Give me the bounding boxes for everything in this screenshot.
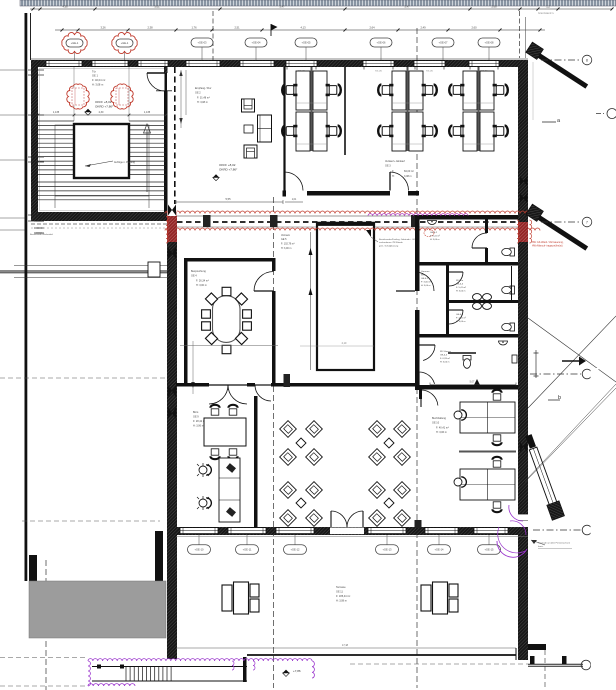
svg-text:GE 1: GE 1 bbox=[92, 74, 98, 78]
svg-text:Büro: Büro bbox=[193, 411, 199, 414]
svg-text:vorhandenes 7R-Wände: vorhandenes 7R-Wände bbox=[379, 241, 403, 244]
svg-text:Besprechung: Besprechung bbox=[191, 270, 206, 273]
svg-text:Verkauf + Einkauf: Verkauf + Einkauf bbox=[385, 160, 405, 163]
svg-text:GE-6-3: GE-6-3 bbox=[456, 284, 464, 286]
svg-text:H: 3,00 m: H: 3,00 m bbox=[456, 321, 466, 323]
svg-text:+GE-07: +GE-07 bbox=[438, 41, 448, 45]
svg-text:HW-Abbruch- tragw.prüfen(st): HW-Abbruch- tragw.prüfen(st) bbox=[532, 245, 563, 248]
svg-text:F: 3,00 m²: F: 3,00 m² bbox=[421, 281, 431, 284]
svg-text:F: 31,48 m²: F: 31,48 m² bbox=[197, 97, 210, 100]
svg-text:Aufzüge n. Planung: Aufzüge n. Planung bbox=[114, 161, 136, 164]
svg-text:3,26: 3,26 bbox=[100, 26, 106, 30]
svg-text:+GE-1: +GE-1 bbox=[121, 41, 129, 45]
svg-text:H: 3,06 m: H: 3,06 m bbox=[436, 431, 447, 434]
svg-text:2,60: 2,60 bbox=[471, 26, 477, 30]
svg-text:H:: H: bbox=[392, 175, 395, 178]
svg-text:F: 40,41 m²: F: 40,41 m² bbox=[436, 427, 449, 430]
svg-text:Vorraum: Vorraum bbox=[281, 234, 290, 237]
svg-text:Bestehende Werbetafel: Bestehende Werbetafel bbox=[30, 233, 53, 236]
svg-text:F: 185,44 m²: F: 185,44 m² bbox=[336, 595, 350, 598]
svg-text:1,01: 1,01 bbox=[292, 199, 297, 201]
svg-text:+GE-11: +GE-11 bbox=[243, 548, 252, 552]
svg-text:Bestehendes/Freilieg. Gebäude: Bestehendes/Freilieg. Gebäude i. UG bbox=[379, 238, 416, 241]
svg-text:OKFF +8,02: OKFF +8,02 bbox=[219, 163, 236, 167]
svg-text:GE 5: GE 5 bbox=[281, 238, 287, 241]
svg-text:1,135: 1,135 bbox=[144, 111, 151, 114]
svg-text:GE-6-2: GE-6-2 bbox=[430, 232, 438, 234]
svg-text:2,49: 2,49 bbox=[420, 26, 426, 30]
svg-text:84,00 m²: 84,00 m² bbox=[404, 170, 414, 173]
svg-text:2,30: 2,30 bbox=[99, 111, 104, 114]
svg-text:GE 9: GE 9 bbox=[193, 416, 199, 419]
svg-text:5,01: 5,01 bbox=[154, 5, 160, 9]
svg-text:H: 3,00 m: H: 3,00 m bbox=[421, 285, 431, 287]
svg-text:OKRD +7,86*: OKRD +7,86* bbox=[219, 168, 238, 172]
svg-text:5,47: 5,47 bbox=[279, 5, 285, 9]
svg-text:H: 3,00 m: H: 3,00 m bbox=[440, 362, 450, 364]
svg-text:+GE-08: +GE-08 bbox=[484, 41, 494, 45]
svg-text:+GE-14: +GE-14 bbox=[434, 548, 444, 552]
svg-text:1,135: 1,135 bbox=[53, 111, 60, 114]
svg-text:+7,86: +7,86 bbox=[293, 669, 301, 673]
svg-text:H: 3,06 m: H: 3,06 m bbox=[193, 425, 204, 428]
svg-text:5,07: 5,07 bbox=[470, 381, 475, 384]
svg-text:+GE-1: +GE-1 bbox=[71, 41, 79, 45]
svg-text:Tür: Tür bbox=[92, 70, 96, 74]
svg-text:17,18: 17,18 bbox=[342, 644, 349, 647]
svg-text:2,10: 2,10 bbox=[342, 342, 347, 345]
svg-text:H: 3,00 m: H: 3,00 m bbox=[430, 239, 440, 241]
svg-text:b: b bbox=[558, 395, 561, 401]
svg-text:F: 102,79 m²: F: 102,79 m² bbox=[281, 243, 295, 246]
svg-text:1,2: 1,2 bbox=[546, 5, 550, 9]
svg-text:Vorraum: Vorraum bbox=[421, 270, 429, 273]
svg-text:+GE-13: +GE-13 bbox=[382, 548, 392, 552]
svg-text:8: 8 bbox=[586, 59, 588, 63]
svg-text:F: 4,26 m²: F: 4,26 m² bbox=[456, 317, 466, 320]
svg-text:GE 10: GE 10 bbox=[432, 422, 440, 425]
svg-text:2,64: 2,64 bbox=[369, 26, 375, 30]
svg-text:F: 6,93 m²: F: 6,93 m² bbox=[440, 357, 450, 360]
svg-text:+GE-15: +GE-15 bbox=[484, 548, 494, 552]
svg-text:WC/Da: WC/Da bbox=[456, 280, 464, 282]
svg-text:horiz.: horiz. bbox=[538, 545, 544, 548]
svg-text:+GE-03: +GE-03 bbox=[197, 41, 207, 45]
svg-text:OKFF +8,02: OKFF +8,02 bbox=[95, 100, 112, 104]
svg-text:+GE-04: +GE-04 bbox=[251, 41, 261, 45]
svg-text:5,55: 5,55 bbox=[225, 197, 231, 201]
svg-text:+GE-06: +GE-06 bbox=[376, 41, 386, 45]
svg-text:4,13: 4,13 bbox=[300, 26, 306, 30]
svg-text:F: 8,41 m²: F: 8,41 m² bbox=[430, 235, 440, 238]
svg-text:F: 5,41 m²: F: 5,41 m² bbox=[456, 286, 466, 289]
svg-text:H: 3,00 m: H: 3,00 m bbox=[196, 284, 207, 287]
svg-text:7: 7 bbox=[586, 221, 588, 225]
svg-text:H: 3,00 m: H: 3,00 m bbox=[456, 291, 466, 293]
svg-text:GE 2: GE 2 bbox=[195, 92, 201, 95]
svg-text:WC Herren: WC Herren bbox=[440, 350, 452, 353]
svg-text:901+80: 901+80 bbox=[426, 71, 434, 73]
svg-text:Sonnade an allen Fensterachsen: Sonnade an allen Fensterachsen bbox=[538, 542, 571, 545]
svg-text:GE 11: GE 11 bbox=[336, 591, 344, 594]
svg-text:Buchhaltung: Buchhaltung bbox=[432, 417, 447, 420]
svg-text:Empfang / Flur: Empfang / Flur bbox=[195, 87, 212, 90]
svg-text:GE 4: GE 4 bbox=[191, 275, 197, 278]
svg-text:H: 3,00 m: H: 3,00 m bbox=[281, 247, 291, 250]
svg-text:+GE-05: +GE-05 bbox=[301, 41, 311, 45]
svg-text:OKRD +7,86*: OKRD +7,86* bbox=[95, 105, 114, 109]
svg-text:Terrasse: Terrasse bbox=[336, 586, 346, 589]
svg-text:+GE-12: +GE-12 bbox=[290, 548, 300, 552]
svg-text:GE 3: GE 3 bbox=[385, 165, 391, 168]
svg-text:2,38: 2,38 bbox=[147, 26, 153, 30]
svg-text:H: 3,08 m: H: 3,08 m bbox=[336, 600, 347, 603]
svg-text:+GE-10: +GE-10 bbox=[194, 548, 204, 552]
svg-text:Grenzwand n.: Grenzwand n. bbox=[538, 11, 554, 15]
svg-text:GE-6-1: GE-6-1 bbox=[421, 278, 429, 280]
svg-text:4,38: 4,38 bbox=[62, 5, 68, 9]
svg-text:1,76: 1,76 bbox=[191, 26, 197, 30]
svg-text:901+80: 901+80 bbox=[375, 71, 383, 73]
svg-text:2,68: 2,68 bbox=[491, 5, 497, 9]
svg-text:H: 3,08 m: H: 3,08 m bbox=[197, 101, 208, 104]
svg-text:F: 26,34 m²: F: 26,34 m² bbox=[196, 280, 209, 283]
svg-text:NW: GK-Wand / Vormauerung,: NW: GK-Wand / Vormauerung, bbox=[532, 241, 564, 244]
svg-text:5,47: 5,47 bbox=[404, 5, 410, 9]
svg-text:gem. Schallplanung: gem. Schallplanung bbox=[379, 245, 399, 247]
svg-text:3,08 m: 3,08 m bbox=[404, 175, 412, 178]
svg-text:F: 40,04 m²: F: 40,04 m² bbox=[92, 78, 105, 82]
svg-text:GE-6-4: GE-6-4 bbox=[456, 314, 464, 316]
svg-text:GE-6-5: GE-6-5 bbox=[440, 355, 448, 357]
svg-text:2,51: 2,51 bbox=[234, 26, 240, 30]
svg-text:H: 3,08 m: H: 3,08 m bbox=[92, 83, 103, 87]
